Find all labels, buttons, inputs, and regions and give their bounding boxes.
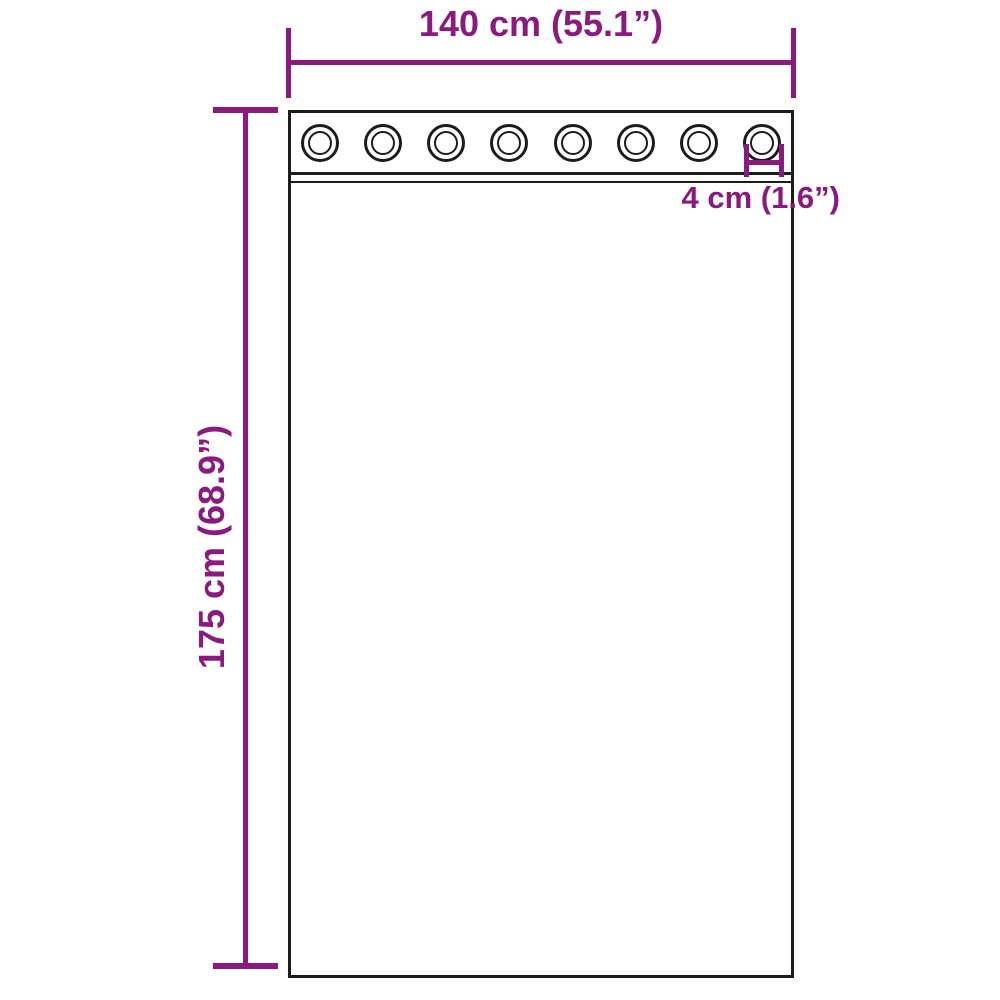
grommet-icon <box>617 124 655 162</box>
curtain-panel <box>288 110 794 978</box>
dimension-diagram: 140 cm (55.1”) 175 cm (68.9”) 4 cm (1.6”… <box>0 0 1000 1000</box>
width-dimension-tick-left <box>286 28 291 98</box>
grommet-inner-ring <box>371 131 395 155</box>
grommet-icon <box>301 124 339 162</box>
height-dimension-line <box>243 110 248 968</box>
grommet-icon <box>490 124 528 162</box>
height-dimension-tick-bottom <box>213 963 278 969</box>
grommet-icon <box>427 124 465 162</box>
height-dimension-label: 175 cm (68.9”) <box>192 425 232 669</box>
width-dimension-label: 140 cm (55.1”) <box>288 4 794 44</box>
grommet-icon <box>364 124 402 162</box>
grommet-row <box>291 124 791 162</box>
grommet-icon <box>680 124 718 162</box>
grommet-inner-ring <box>687 131 711 155</box>
grommet-inner-ring <box>624 131 648 155</box>
grommet-inner-ring <box>561 131 585 155</box>
grommet-icon <box>554 124 592 162</box>
grommet-inner-ring <box>434 131 458 155</box>
grommet-dimension-label: 4 cm (1.6”) <box>640 181 840 215</box>
grommet-inner-ring <box>750 131 774 155</box>
width-dimension-tick-right <box>791 28 796 98</box>
height-dimension-tick-top <box>213 107 278 113</box>
grommet-inner-ring <box>497 131 521 155</box>
header-stitch-line-1 <box>291 172 791 175</box>
grommet-dimension-line <box>744 160 784 165</box>
width-dimension-line <box>288 60 794 65</box>
grommet-inner-ring <box>308 131 332 155</box>
